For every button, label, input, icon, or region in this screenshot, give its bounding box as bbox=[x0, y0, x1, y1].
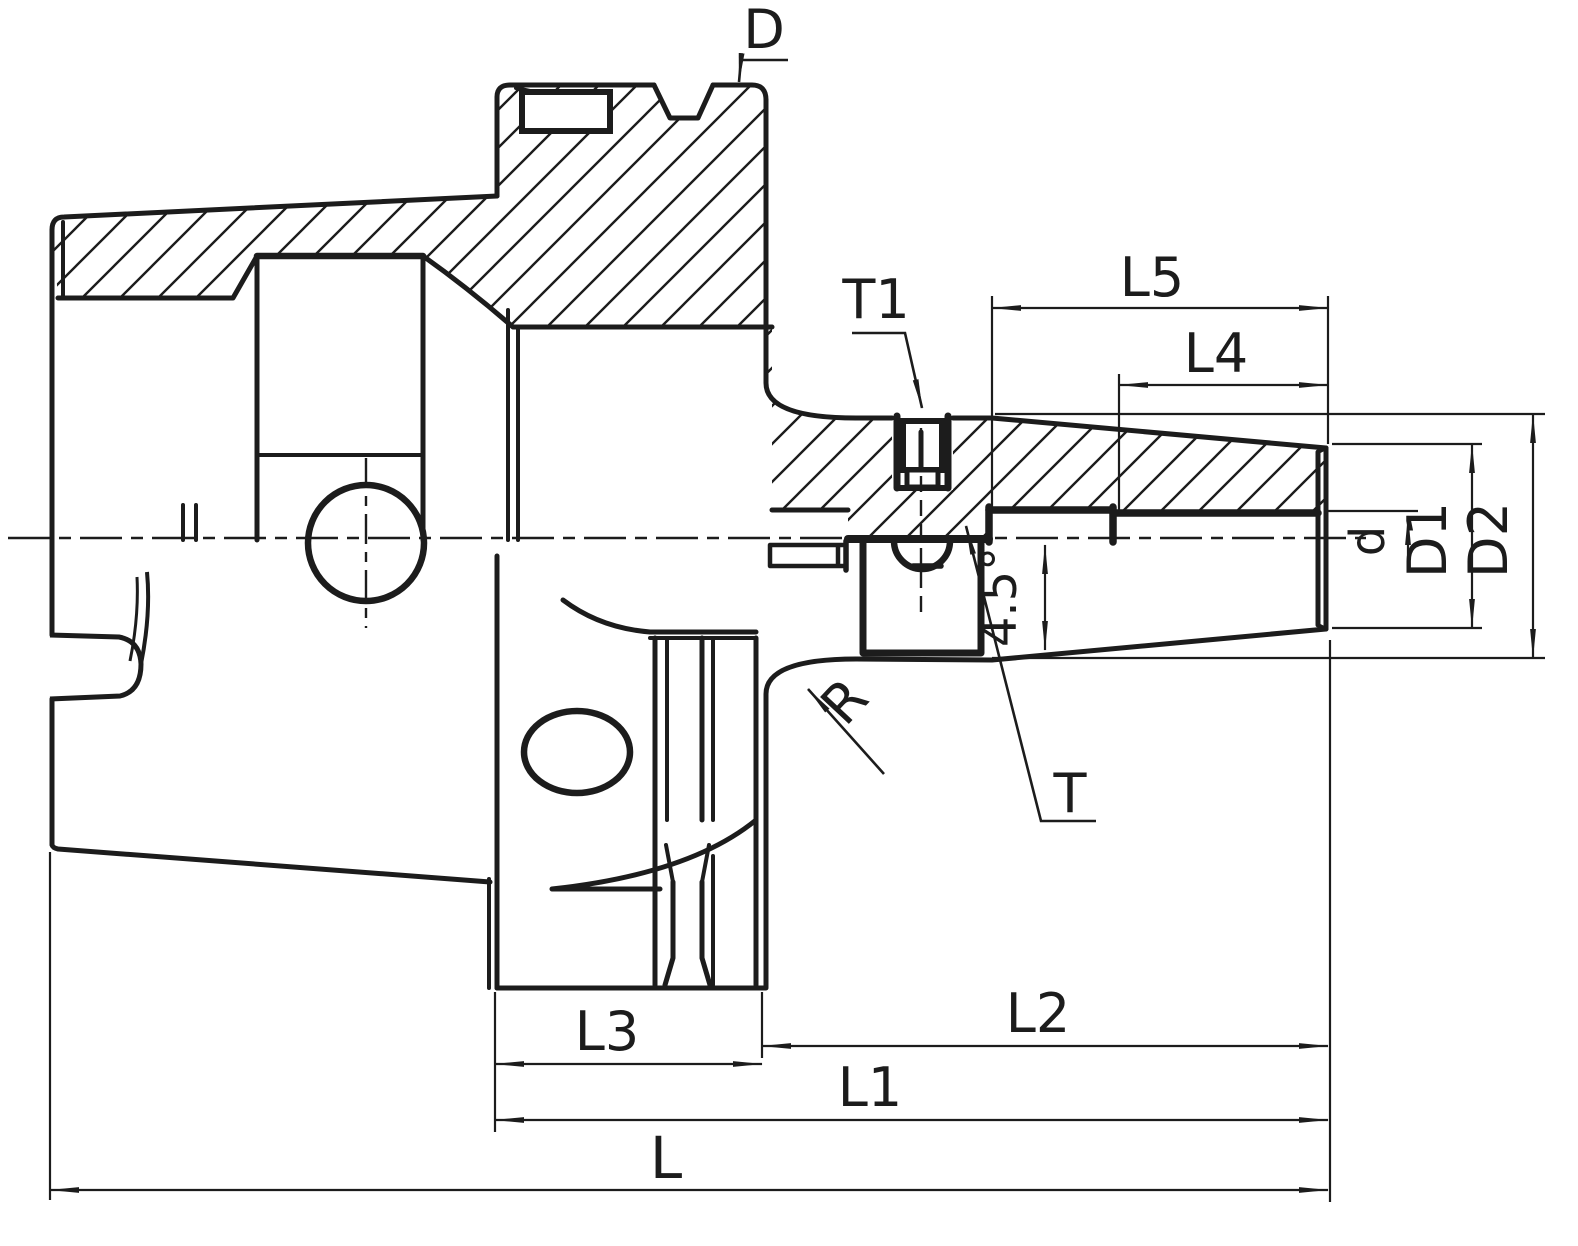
label-L3: L3 bbox=[575, 1000, 639, 1063]
grip-groove-notch bbox=[50, 635, 141, 699]
label-L1: L1 bbox=[838, 1056, 902, 1119]
label-L4: L4 bbox=[1184, 322, 1248, 385]
flange-groove bbox=[522, 92, 610, 131]
label-D2: D2 bbox=[1457, 502, 1520, 578]
label-L: L bbox=[650, 1124, 682, 1192]
grip-groove-edge bbox=[141, 572, 148, 664]
label-L2: L2 bbox=[1006, 982, 1070, 1045]
coolant-tube bbox=[770, 545, 846, 566]
label-d: d bbox=[1340, 526, 1396, 556]
label-angle: 4.5° bbox=[972, 547, 1028, 647]
label-D1: D1 bbox=[1396, 502, 1459, 578]
leader-D bbox=[739, 60, 788, 82]
tool-holder-cross-section-drawing: D T1 L5 L4 d D1 D2 4.5° T R L3 L2 L1 L bbox=[0, 0, 1578, 1246]
label-L5: L5 bbox=[1120, 246, 1184, 309]
leader-T1 bbox=[852, 333, 922, 408]
section-hatch bbox=[52, 85, 1326, 540]
set-screw bbox=[897, 416, 948, 488]
label-T1: T1 bbox=[841, 268, 909, 331]
label-T: T bbox=[1053, 762, 1088, 825]
label-R: R bbox=[809, 666, 881, 736]
technical-drawing-page: D T1 L5 L4 d D1 D2 4.5° T R L3 L2 L1 L bbox=[0, 0, 1578, 1246]
balance-hole bbox=[524, 711, 630, 793]
label-D: D bbox=[743, 0, 785, 61]
